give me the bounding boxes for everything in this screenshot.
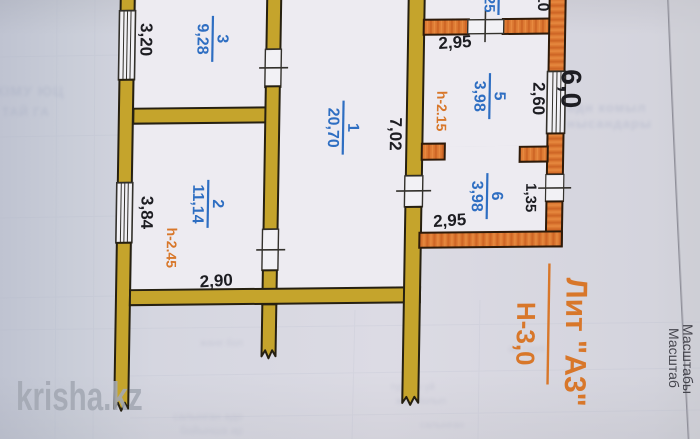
svg-text:2,60: 2,60 <box>529 82 549 115</box>
svg-text:25: 25 <box>480 0 497 13</box>
svg-text:6: 6 <box>488 191 505 200</box>
svg-text:салынған: салынған <box>420 420 464 431</box>
svg-text:салынган әдо: салынган әдо <box>173 411 243 423</box>
svg-text:2: 2 <box>209 199 226 208</box>
svg-text:ТАЙ ГА: ТАЙ ГА <box>2 104 50 119</box>
svg-text:3,98: 3,98 <box>470 81 487 112</box>
svg-text:1,35: 1,35 <box>522 183 539 212</box>
svg-text:3,20: 3,20 <box>136 23 156 56</box>
svg-text:1: 1 <box>344 123 361 132</box>
svg-text:5: 5 <box>491 91 508 100</box>
svg-text:6,0: 6,0 <box>555 69 587 108</box>
svg-text:7,02: 7,02 <box>386 117 406 150</box>
svg-text:2,95: 2,95 <box>438 32 472 53</box>
svg-text:h-2.15: h-2.15 <box>434 91 451 132</box>
svg-text:10: 10 <box>534 0 551 12</box>
svg-text:жане бол: жане бол <box>200 337 243 349</box>
svg-text:2,95: 2,95 <box>433 210 467 231</box>
svg-text:krisha.kz: krisha.kz <box>16 375 143 419</box>
svg-text:бойынша әр: бойынша әр <box>180 425 243 437</box>
svg-text:11,14: 11,14 <box>189 184 207 223</box>
svg-text:h-2.45: h-2.45 <box>163 227 180 268</box>
svg-text:Н-3,0: Н-3,0 <box>510 302 541 366</box>
svg-text:Лит "А3": Лит "А3" <box>558 277 593 407</box>
svg-text:2,90: 2,90 <box>199 270 233 291</box>
svg-text:3: 3 <box>214 34 231 43</box>
svg-text:3,98: 3,98 <box>468 181 485 212</box>
svg-text:9,28: 9,28 <box>193 23 210 54</box>
svg-text:Масштаб: Масштаб <box>666 328 682 388</box>
svg-text:КІМУ ЮЦ: КІМУ ЮЦ <box>0 83 64 99</box>
svg-text:нысандары: нысандары <box>567 116 652 131</box>
svg-text:3,84: 3,84 <box>137 196 157 230</box>
svg-text:20,70: 20,70 <box>324 108 342 148</box>
